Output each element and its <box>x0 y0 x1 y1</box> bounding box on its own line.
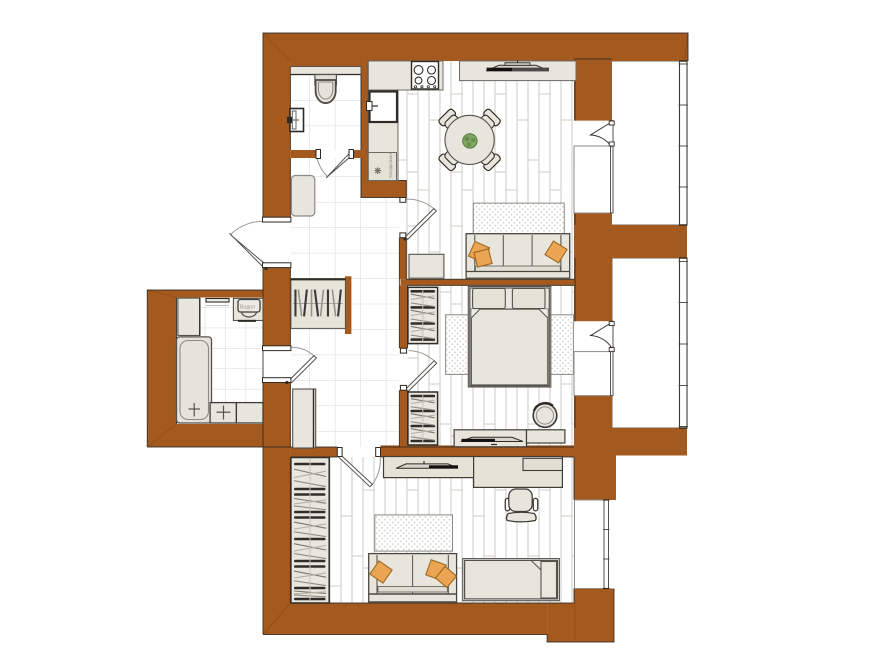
svg-text:❋: ❋ <box>374 166 382 176</box>
svg-text:Водол: Водол <box>240 305 255 311</box>
svg-text:Холодильник: Холодильник <box>388 152 393 178</box>
